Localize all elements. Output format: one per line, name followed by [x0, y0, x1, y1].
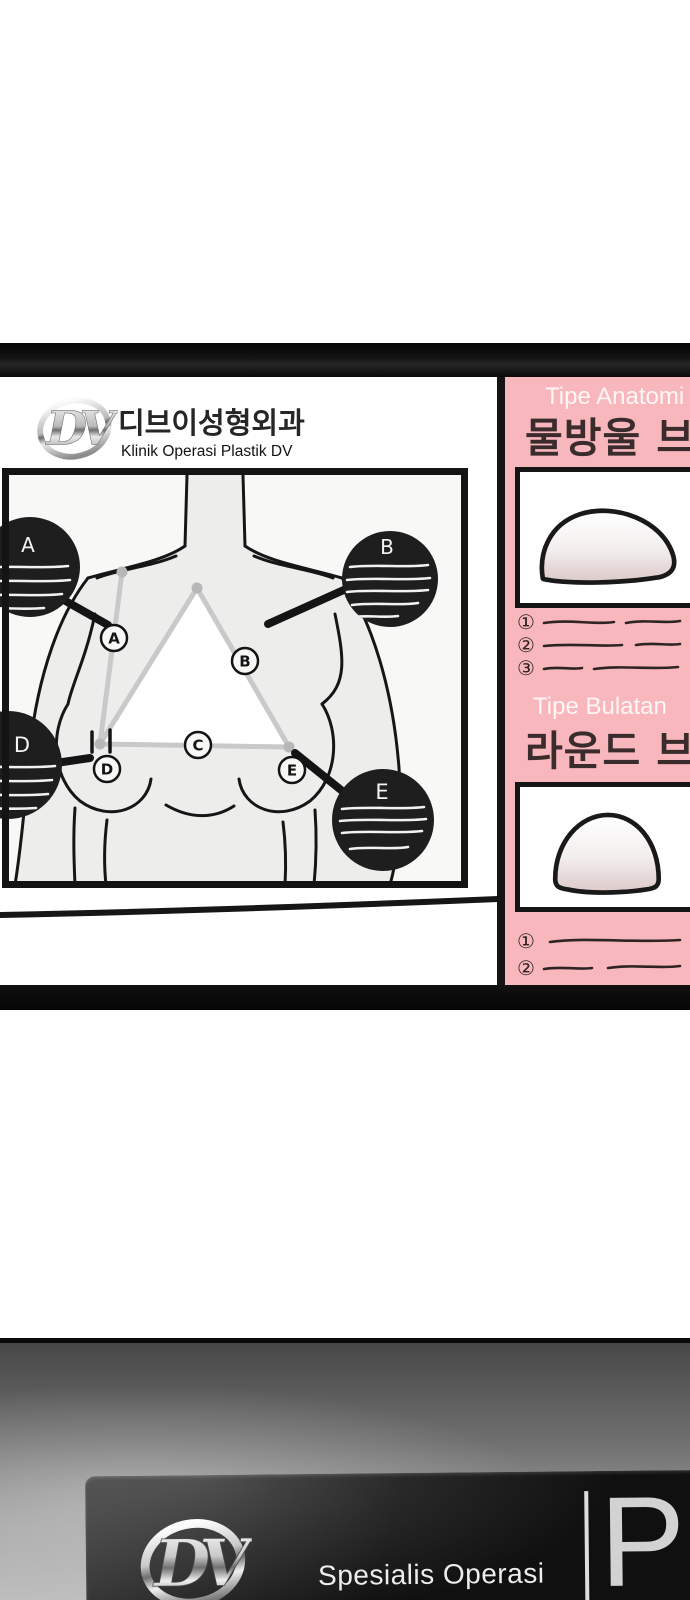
webtoon-panel: DV 디브이성형외과 Klinik Operasi Plastik DV [0, 0, 690, 1600]
board-bottom-edge [0, 893, 500, 919]
teardrop-implant-shape [542, 511, 674, 583]
point-label-a: A [101, 625, 127, 651]
clinic-sign: DV Spesialis Operasi P [85, 1470, 690, 1600]
point-label-d: D [94, 756, 120, 782]
dv-logo-icon: DV [133, 1501, 252, 1600]
svg-text:A: A [108, 630, 120, 648]
callout-letter: A [21, 533, 35, 557]
round-implant-shape [555, 815, 659, 893]
implant-type-panel: Tipe Anatomi 물방울 브 ① ② [497, 377, 690, 985]
callout-circle-e: E [332, 769, 434, 871]
circled-number: ① [517, 931, 535, 951]
round-implant-image [515, 782, 690, 912]
svg-text:B: B [239, 653, 250, 671]
measure-point [192, 583, 203, 594]
dv-logo-icon: DV [34, 384, 118, 468]
list-item: ③ [517, 656, 682, 680]
circled-number: ② [517, 958, 535, 978]
screen-frame-bottom [0, 985, 690, 1010]
scribble-line [542, 660, 682, 676]
sign-partial-letter: P [599, 1472, 686, 1600]
scribble-line [542, 614, 682, 630]
screen-frame-top [0, 343, 690, 377]
list-item: ① [517, 610, 682, 634]
callout-circle-b: B [342, 531, 438, 627]
svg-text:C: C [192, 737, 203, 755]
section-korean-teardrop: 물방울 브 [525, 404, 690, 464]
point-label-c: C [185, 732, 211, 758]
svg-text:E: E [287, 762, 297, 780]
point-label-b: B [232, 648, 258, 674]
logo-monogram: DV [152, 1525, 253, 1600]
logo-monogram: DV [44, 401, 118, 456]
list-item: ① [517, 929, 682, 953]
scribble-line [542, 960, 682, 976]
measure-point [95, 739, 106, 750]
circled-number: ③ [517, 658, 535, 678]
callout-letter: D [14, 733, 30, 757]
section-korean-round: 라운드 브 [525, 717, 690, 777]
measure-point [117, 567, 128, 578]
clinic-korean-name: 디브이성형외과 [118, 400, 305, 442]
clinic-latin-name: Klinik Operasi Plastik DV [121, 443, 292, 461]
point-label-e: E [279, 757, 305, 783]
callout-letter: B [380, 535, 394, 559]
sign-caption: Spesialis Operasi [318, 1558, 545, 1592]
callout-letter: E [375, 780, 388, 804]
list-item: ② [517, 633, 682, 657]
circled-number: ① [517, 612, 535, 632]
scribble-line [542, 933, 682, 949]
list-item: ② [517, 956, 682, 980]
svg-text:D: D [101, 761, 113, 779]
anatomy-diagram: A B D E [0, 468, 470, 888]
teardrop-implant-image [515, 467, 690, 608]
bottom-banner-scene: DV Spesialis Operasi P [0, 1338, 690, 1600]
scribble-line [542, 637, 682, 653]
circled-number: ② [517, 635, 535, 655]
sign-divider [584, 1491, 590, 1600]
